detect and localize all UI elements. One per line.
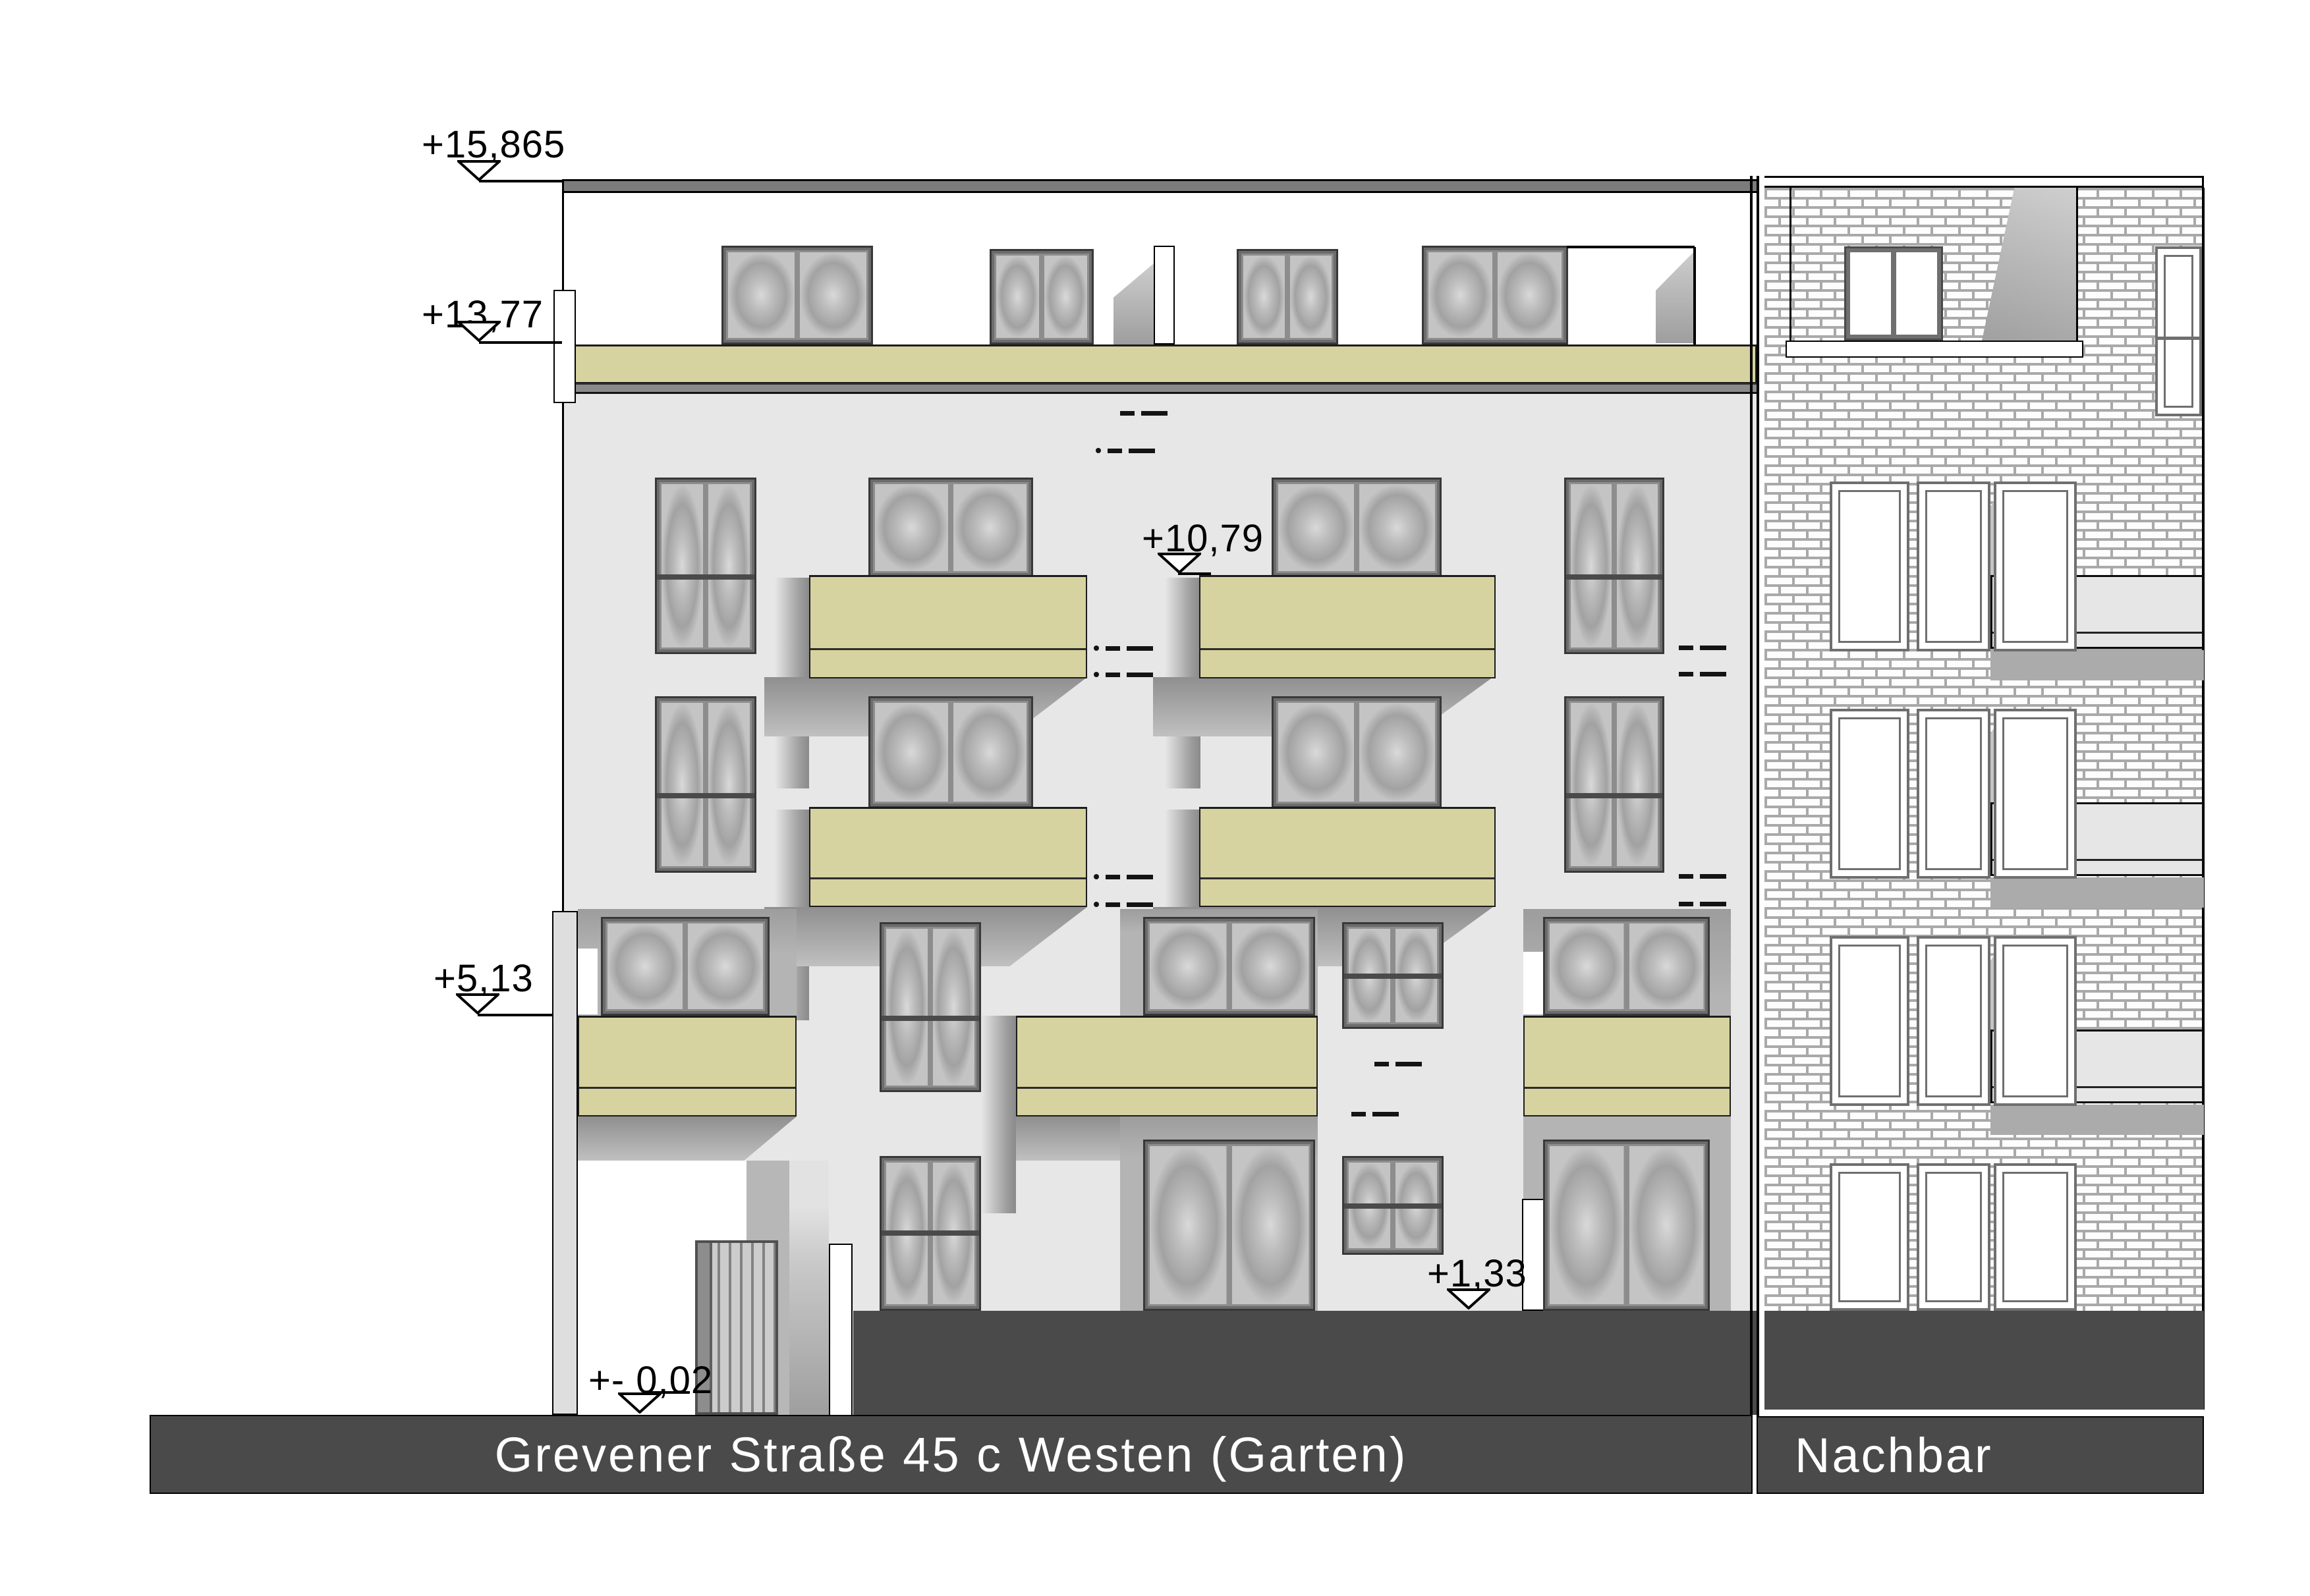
penthouse-window-pair (1237, 249, 1338, 344)
wall-edge-line (1693, 247, 1696, 344)
neighbor-window (1917, 936, 1990, 1106)
balcony-door-pair (1272, 478, 1442, 578)
window-pair (1342, 922, 1444, 1029)
roof-terrace-parapet (562, 344, 1757, 383)
penthouse-wall-fin (1154, 246, 1175, 344)
loggia-sidelight (1523, 952, 1543, 1014)
level-dash-mark (1094, 646, 1153, 651)
terrace-door-pair (1143, 1140, 1315, 1311)
window-pair-tall (1564, 696, 1664, 873)
level-dash-mark (1094, 902, 1153, 907)
balcony-door-pair (868, 478, 1033, 578)
loggia-door-pair (1543, 917, 1710, 1016)
level-dash-mark (1094, 874, 1153, 879)
window-pair-tall (655, 478, 756, 654)
balcony (1523, 1016, 1731, 1116)
neighbor-window (1994, 936, 2077, 1106)
balcony (809, 807, 1087, 907)
reference-line (1178, 572, 1211, 575)
reference-line (479, 341, 562, 344)
elevation-drawing: Grevener Straße 45 c Westen (Garten) Nac… (0, 0, 2310, 1596)
neighbor-window (1830, 709, 1909, 879)
neighbor-window (1994, 709, 2077, 879)
title-bar-main: Grevener Straße 45 c Westen (Garten) (150, 1415, 1753, 1494)
slab-shadow-band (1990, 1105, 2204, 1135)
neighbor-roof-band (1764, 176, 2204, 188)
balcony (809, 575, 1087, 678)
terrace-door-pair (1543, 1140, 1710, 1311)
level-dash-mark (1374, 1062, 1422, 1066)
elevation-marker-icon (457, 160, 501, 181)
passage-reveal-shadow (789, 1161, 829, 1415)
neighbor-plinth (1764, 1311, 2204, 1410)
loggia-sidelight (578, 949, 598, 1014)
lintel-line (1567, 246, 1695, 248)
caption-main: Grevener Straße 45 c Westen (Garten) (495, 1427, 1408, 1483)
recess-edge (1789, 188, 1791, 353)
slab-shadow-band (1990, 877, 2204, 908)
level-dash-mark (1679, 874, 1726, 879)
window-pair (1342, 1156, 1444, 1255)
window-pair-tall (1564, 478, 1664, 654)
balcony-door-pair (1272, 696, 1442, 808)
elevation-marker-icon (456, 993, 499, 1014)
elevation-marker-icon (1158, 553, 1201, 574)
level-dash-mark (1679, 646, 1726, 650)
neighbor-window (1830, 1163, 1909, 1311)
boundary-line (1757, 176, 1759, 1494)
caption-neighbor: Nachbar (1795, 1427, 1993, 1483)
level-dash-mark (1096, 448, 1155, 453)
window-pair-tall (880, 922, 981, 1092)
penthouse-window-pair (721, 246, 873, 344)
neighbor-corner-line (2202, 188, 2205, 1410)
title-bar-neighbor: Nachbar (1757, 1416, 2204, 1494)
roof-slab (562, 179, 1757, 193)
recess-sill (1786, 341, 2083, 358)
recess-edge (2076, 188, 2078, 353)
balcony (1199, 575, 1496, 678)
balcony (1016, 1016, 1318, 1116)
level-dash-mark (1679, 672, 1726, 676)
elevation-marker-icon (618, 1392, 662, 1414)
elevation-marker-icon (457, 321, 501, 342)
level-dash-mark (1679, 902, 1726, 906)
parapet-return-wall (553, 290, 576, 403)
neighbor-window (1830, 482, 1909, 651)
garden-wall (853, 1311, 1757, 1415)
cornice-band (562, 383, 1757, 394)
neighbor-window (1994, 482, 2077, 651)
balcony-side-shadow (981, 1016, 1016, 1213)
loggia-door-pair (1143, 917, 1315, 1016)
neighbor-window-pair (1844, 246, 1943, 341)
elevation-marker-icon (1447, 1288, 1490, 1309)
loggia-door-pair (601, 917, 770, 1016)
slab-shadow-band (1990, 650, 2204, 680)
balcony (578, 1016, 797, 1116)
passage-pillar (829, 1244, 853, 1416)
boundary-line (1750, 176, 1753, 1494)
window-pair (880, 1156, 981, 1311)
neighbor-window (1994, 1163, 2077, 1311)
penthouse-window-pair (990, 249, 1094, 344)
level-dash-mark (1120, 411, 1168, 416)
penthouse-window-pair (1422, 246, 1568, 344)
balcony-door-pair (868, 696, 1033, 808)
window-pair-tall (655, 696, 756, 873)
reference-line (479, 180, 562, 182)
neighbor-window (1917, 709, 1990, 879)
neighbor-window (1917, 1163, 1990, 1311)
neighbor-stair-window (2155, 246, 2202, 416)
reference-line (478, 1014, 552, 1016)
facade-edge-wall (552, 911, 578, 1415)
neighbor-window (1917, 482, 1990, 651)
level-dash-mark (1351, 1112, 1399, 1116)
balcony (1199, 807, 1496, 907)
neighbor-window (1830, 936, 1909, 1106)
level-dash-mark (1094, 672, 1153, 677)
